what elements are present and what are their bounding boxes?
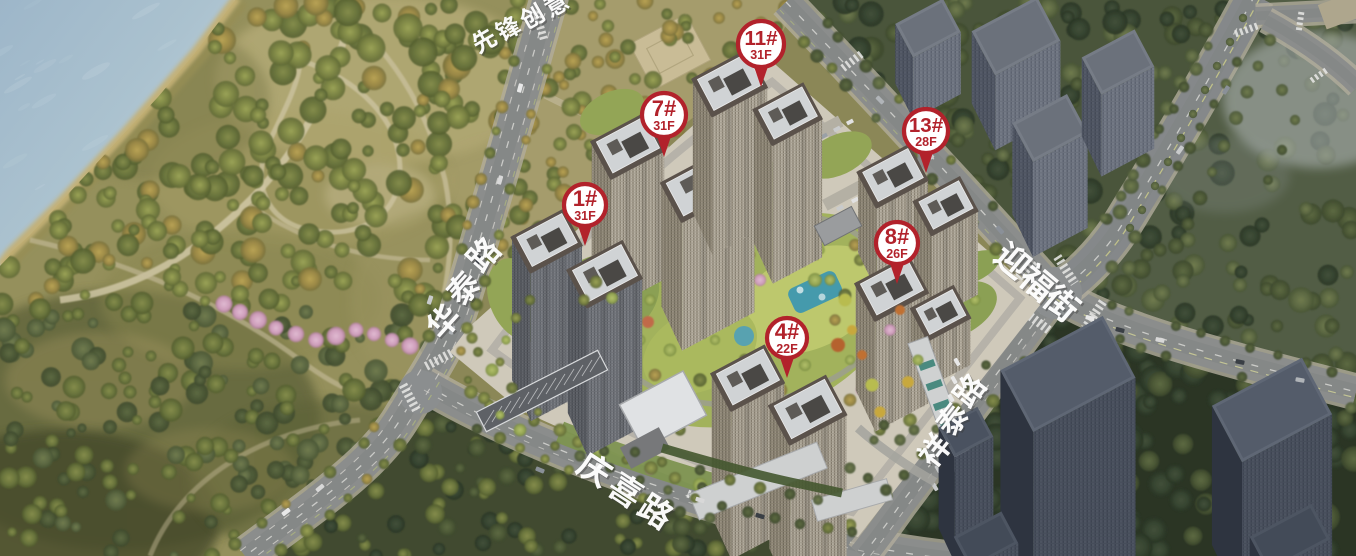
svg-text:8#: 8# [885, 224, 909, 249]
svg-text:4#: 4# [775, 319, 799, 344]
svg-text:31F: 31F [653, 119, 675, 133]
svg-text:31F: 31F [574, 209, 596, 223]
svg-text:28F: 28F [915, 135, 937, 149]
svg-text:7#: 7# [652, 96, 676, 121]
svg-text:11#: 11# [744, 27, 778, 50]
svg-text:22F: 22F [776, 342, 798, 356]
svg-text:26F: 26F [886, 247, 908, 261]
svg-text:13#: 13# [909, 114, 944, 137]
svg-text:1#: 1# [573, 186, 597, 211]
svg-text:31F: 31F [750, 48, 772, 62]
